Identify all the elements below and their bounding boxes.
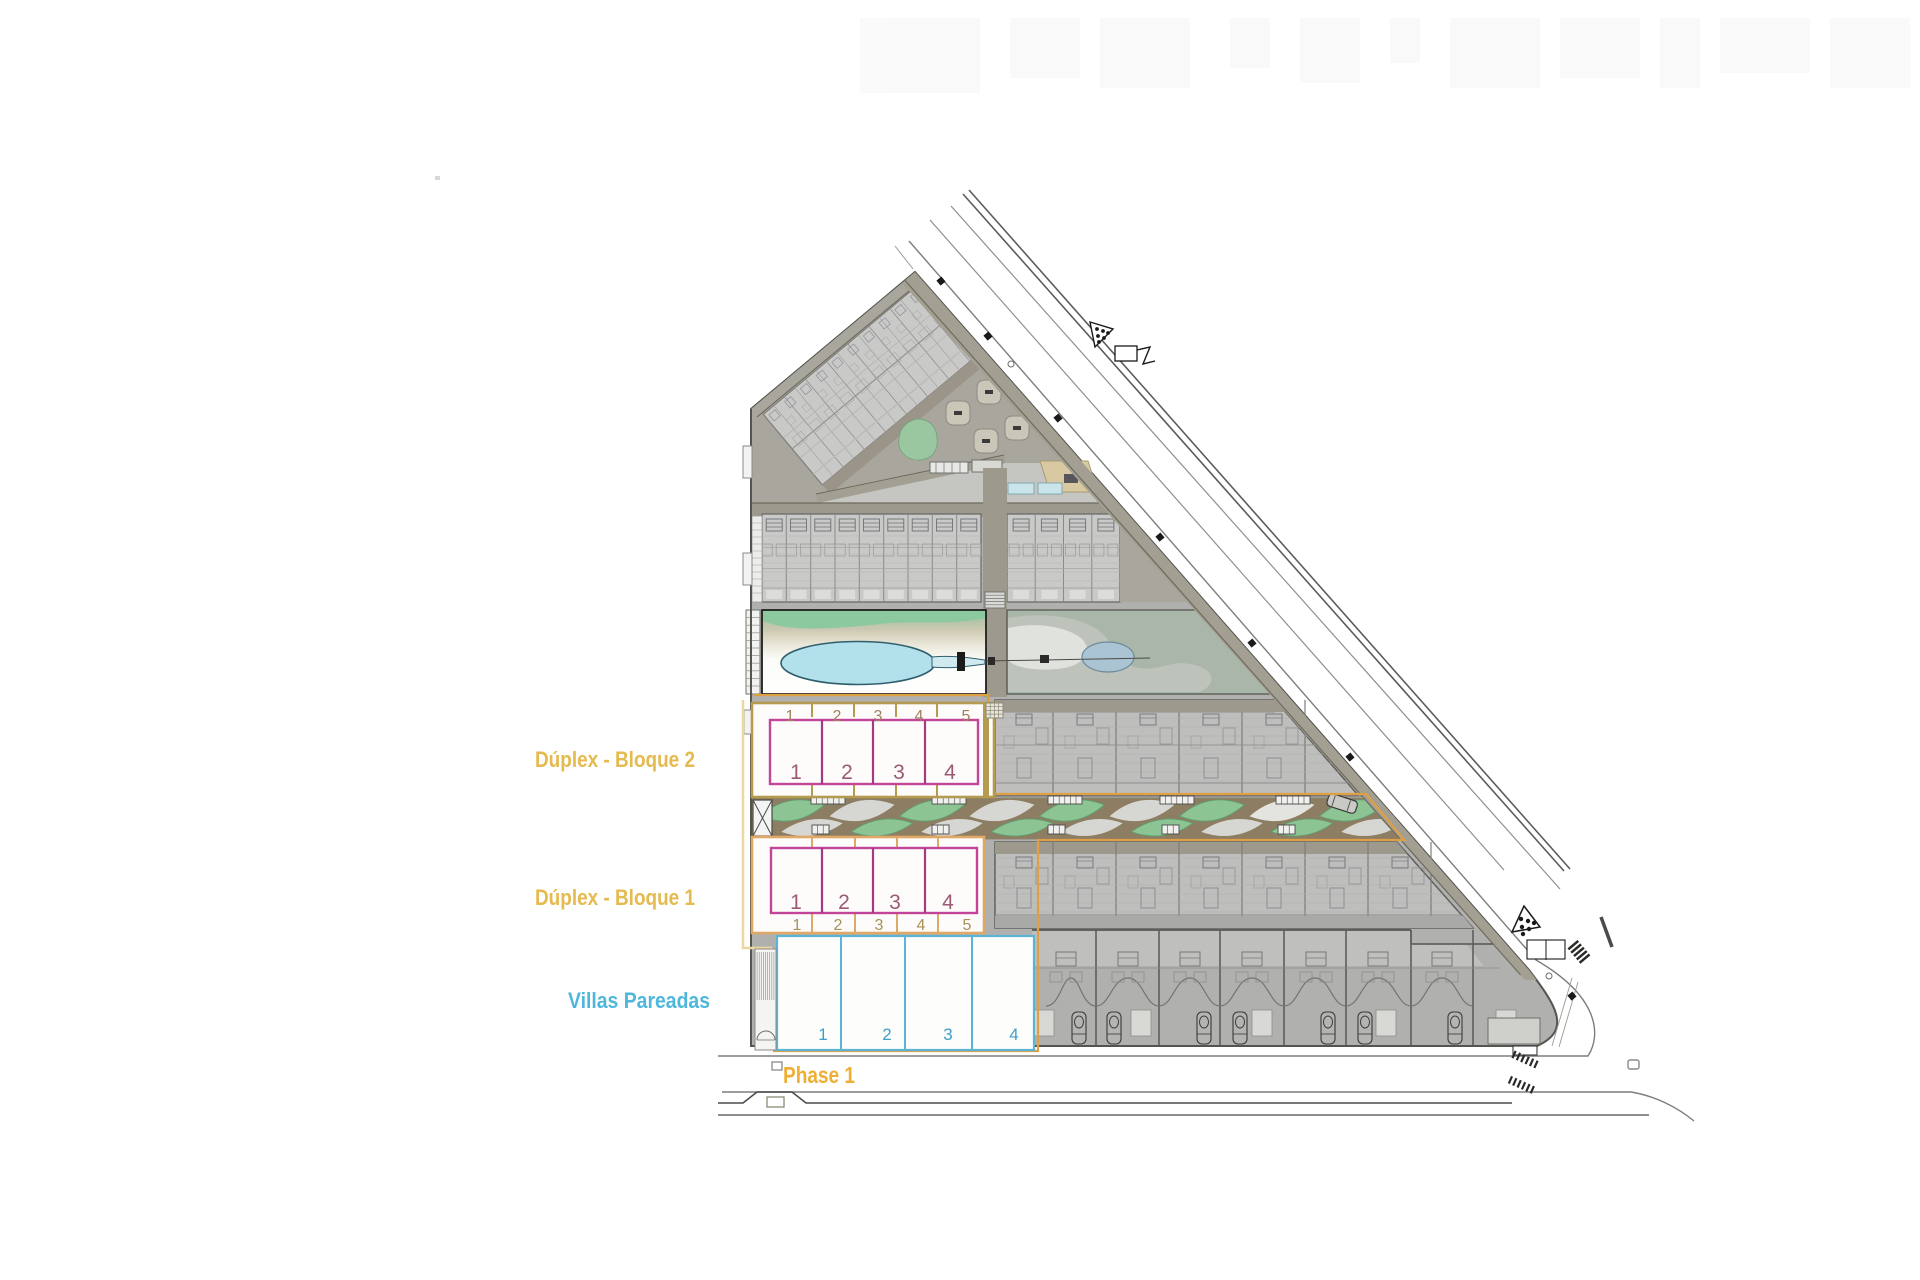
svg-text:1: 1 (793, 917, 802, 934)
svg-text:3: 3 (893, 761, 905, 784)
svg-text:Dúplex - Bloque 1: Dúplex - Bloque 1 (535, 885, 695, 910)
svg-text:1: 1 (786, 708, 795, 725)
svg-text:3: 3 (889, 891, 901, 914)
svg-text:4: 4 (942, 891, 954, 914)
svg-text:4: 4 (944, 761, 956, 784)
svg-text:2: 2 (882, 1025, 891, 1044)
svg-text:Villas Pareadas: Villas Pareadas (568, 988, 710, 1013)
svg-text:2: 2 (834, 917, 843, 934)
svg-text:2: 2 (841, 761, 853, 784)
svg-text:2: 2 (833, 708, 842, 725)
svg-text:3: 3 (875, 917, 884, 934)
svg-text:1: 1 (818, 1025, 827, 1044)
svg-text:1: 1 (790, 761, 802, 784)
svg-text:3: 3 (943, 1025, 952, 1044)
svg-text:5: 5 (962, 708, 971, 725)
svg-text:4: 4 (1009, 1025, 1018, 1044)
svg-text:3: 3 (874, 708, 883, 725)
svg-text:Phase 1: Phase 1 (783, 1062, 855, 1088)
svg-text:4: 4 (915, 708, 924, 725)
svg-text:Dúplex - Bloque 2: Dúplex - Bloque 2 (535, 747, 695, 772)
svg-text:5: 5 (963, 917, 972, 934)
svg-text:1: 1 (790, 891, 802, 914)
svg-text:2: 2 (838, 891, 850, 914)
svg-text:4: 4 (917, 917, 926, 934)
